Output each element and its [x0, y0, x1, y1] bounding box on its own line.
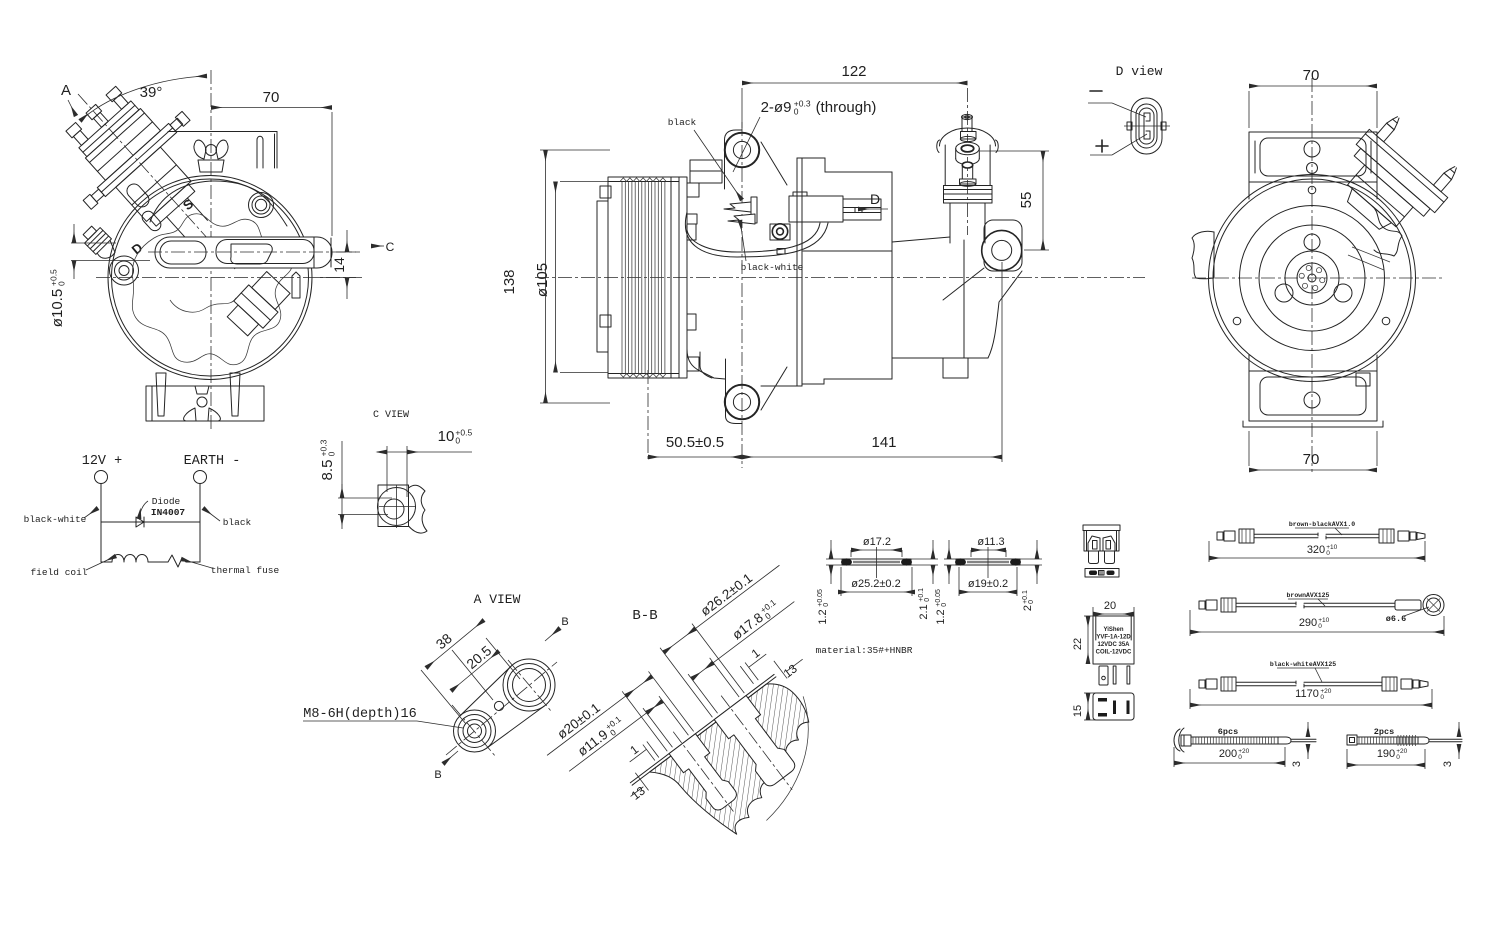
svg-text:IN4007: IN4007 [151, 507, 186, 518]
svg-text:2pcs: 2pcs [1374, 727, 1394, 737]
svg-text:14: 14 [331, 257, 347, 273]
svg-text:ø19±0.2: ø19±0.2 [968, 578, 1008, 590]
svg-text:1.2: 1.2 [817, 609, 829, 624]
svg-text:C VIEW: C VIEW [373, 410, 409, 421]
svg-text:0: 0 [1396, 754, 1400, 761]
svg-text:ø105: ø105 [534, 263, 551, 297]
svg-text:0: 0 [327, 451, 337, 456]
svg-text:0: 0 [1326, 550, 1330, 557]
svg-text:0: 0 [1238, 754, 1242, 761]
svg-text:A: A [61, 82, 71, 99]
svg-text:70: 70 [1303, 451, 1320, 468]
svg-text:15: 15 [1072, 705, 1084, 717]
svg-text:0: 0 [794, 107, 799, 117]
svg-text:field coil: field coil [30, 567, 87, 578]
svg-text:thermal fuse: thermal fuse [211, 565, 280, 576]
svg-text:2.1: 2.1 [918, 604, 930, 619]
svg-text:8.5: 8.5 [319, 460, 336, 481]
svg-text:6pcs: 6pcs [1218, 727, 1238, 737]
svg-text:0: 0 [57, 281, 67, 286]
svg-text:ø6.6: ø6.6 [1386, 614, 1406, 624]
svg-text:YiShen: YiShen [1103, 627, 1123, 633]
svg-text:black-white: black-white [741, 262, 804, 273]
svg-text:B: B [561, 616, 568, 628]
svg-text:YVF-1A-12D: YVF-1A-12D [1096, 635, 1131, 641]
svg-text:190: 190 [1377, 748, 1395, 760]
svg-text:3: 3 [1291, 761, 1303, 767]
svg-text:70: 70 [1303, 67, 1320, 84]
svg-text:12V +: 12V + [82, 454, 123, 469]
svg-text:0: 0 [1320, 694, 1324, 701]
svg-text:22: 22 [1072, 638, 1084, 650]
svg-text:ø17.2: ø17.2 [863, 536, 891, 548]
svg-text:D: D [870, 191, 880, 207]
svg-text:D view: D view [1116, 64, 1163, 79]
svg-text:55: 55 [1018, 192, 1035, 209]
svg-text:COIL-12VDC: COIL-12VDC [1096, 650, 1132, 656]
svg-text:material:35#+HNBR: material:35#+HNBR [816, 645, 913, 656]
svg-text:black: black [668, 117, 697, 128]
svg-text:brown-blackAVX1.0: brown-blackAVX1.0 [1289, 521, 1355, 528]
svg-text:2: 2 [1022, 605, 1034, 611]
svg-text:2-ø9: 2-ø9 [761, 99, 792, 116]
svg-text:black-white: black-white [24, 514, 87, 525]
svg-text:20: 20 [1104, 600, 1116, 612]
svg-text:A VIEW: A VIEW [474, 592, 521, 607]
svg-text:ø11.3: ø11.3 [977, 536, 1004, 548]
svg-text:0: 0 [924, 598, 931, 602]
svg-text:C: C [386, 240, 395, 254]
svg-text:0: 0 [1318, 623, 1322, 630]
svg-text:0: 0 [1028, 600, 1035, 604]
svg-text:EARTH -: EARTH - [184, 454, 241, 469]
svg-text:290: 290 [1299, 617, 1317, 629]
svg-text:141: 141 [871, 434, 896, 451]
svg-text:12VDC 35A: 12VDC 35A [1097, 642, 1130, 648]
svg-text:0: 0 [455, 436, 460, 446]
svg-text:B-B: B-B [632, 608, 657, 624]
svg-text:black: black [223, 517, 252, 528]
svg-text:70: 70 [263, 89, 280, 106]
svg-text:3: 3 [1442, 761, 1454, 767]
svg-text:10: 10 [438, 428, 455, 445]
svg-text:ø10.5: ø10.5 [49, 289, 66, 327]
svg-text:320: 320 [1307, 544, 1325, 556]
svg-text:122: 122 [841, 63, 866, 80]
svg-text:50.5±0.5: 50.5±0.5 [666, 434, 724, 451]
svg-text:B: B [434, 769, 441, 781]
svg-text:0: 0 [941, 603, 948, 607]
svg-text:ø25.2±0.2: ø25.2±0.2 [851, 578, 900, 590]
svg-text:Diode: Diode [152, 496, 181, 507]
svg-text:1.2: 1.2 [935, 609, 947, 624]
svg-text:(through): (through) [816, 99, 877, 116]
svg-text:39°: 39° [140, 84, 163, 101]
svg-text:138: 138 [501, 269, 518, 294]
svg-text:1170: 1170 [1295, 688, 1319, 700]
svg-text:black-whiteAVX125: black-whiteAVX125 [1270, 661, 1336, 668]
svg-text:0: 0 [823, 603, 830, 607]
svg-text:brownAVX125: brownAVX125 [1287, 592, 1330, 599]
svg-text:200: 200 [1219, 748, 1237, 760]
svg-text:M8-6H(depth)16: M8-6H(depth)16 [303, 707, 416, 722]
